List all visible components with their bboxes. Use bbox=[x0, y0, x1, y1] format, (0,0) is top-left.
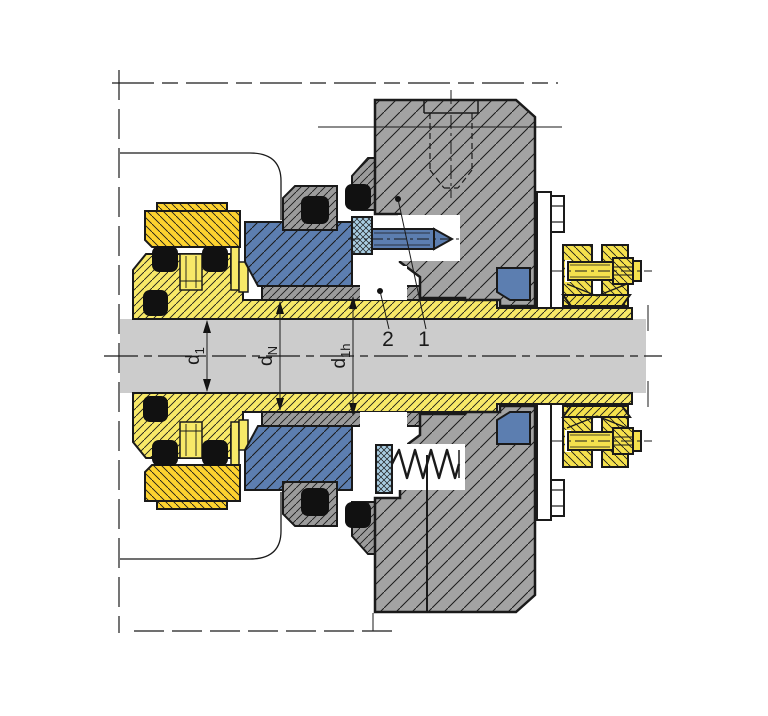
o-ring bbox=[202, 440, 228, 466]
o-ring bbox=[143, 396, 168, 422]
o-ring bbox=[301, 488, 329, 516]
clamp-ring-strip-hatch bbox=[157, 203, 227, 211]
spring-guide-hatch bbox=[376, 445, 392, 493]
seat-drive-lug bbox=[497, 268, 530, 300]
o-ring bbox=[202, 246, 228, 272]
seal-cross-section-diagram: d1 dN d1h 2 1 bbox=[0, 0, 768, 716]
o-ring bbox=[301, 196, 329, 224]
gland-set-screw bbox=[180, 254, 202, 290]
gland-set-screw bbox=[180, 422, 202, 458]
clamp-ring-hatch bbox=[145, 465, 240, 501]
flange-bolt-head bbox=[551, 480, 564, 516]
clamp-ring-strip-hatch bbox=[157, 501, 227, 509]
gland-plate bbox=[537, 404, 551, 520]
o-ring bbox=[345, 502, 371, 528]
clamp-ring-hatch bbox=[145, 211, 240, 247]
dim-sub: 1h bbox=[338, 343, 353, 357]
drive-collar-base-hatch bbox=[563, 406, 630, 417]
drawing-canvas: d1 dN d1h 2 1 bbox=[0, 0, 768, 716]
set-screw-head-hatch bbox=[352, 217, 372, 254]
callout-label-1: 1 bbox=[418, 328, 430, 351]
sleeve-drive-lug bbox=[231, 422, 239, 466]
dim-main: d bbox=[256, 355, 277, 366]
o-ring bbox=[345, 184, 371, 210]
o-ring bbox=[143, 290, 168, 316]
rotating-face-carrier-hatch bbox=[245, 426, 352, 490]
drive-collar-base-hatch bbox=[563, 295, 630, 306]
o-ring bbox=[152, 440, 178, 466]
dim-sub: N bbox=[265, 346, 280, 355]
o-ring bbox=[152, 246, 178, 272]
gland-plate bbox=[537, 192, 551, 308]
rotating-face-carrier-hatch bbox=[245, 222, 352, 286]
dim-main: d bbox=[329, 358, 350, 369]
sleeve-drive-lug bbox=[231, 246, 239, 290]
callout-label-2: 2 bbox=[382, 328, 394, 351]
pocket bbox=[360, 412, 407, 446]
dim-main: d bbox=[183, 354, 204, 365]
pocket bbox=[360, 266, 407, 300]
dim-sub: 1 bbox=[192, 347, 207, 354]
seat-drive-lug bbox=[497, 412, 530, 444]
flange-bolt-head bbox=[551, 196, 564, 232]
